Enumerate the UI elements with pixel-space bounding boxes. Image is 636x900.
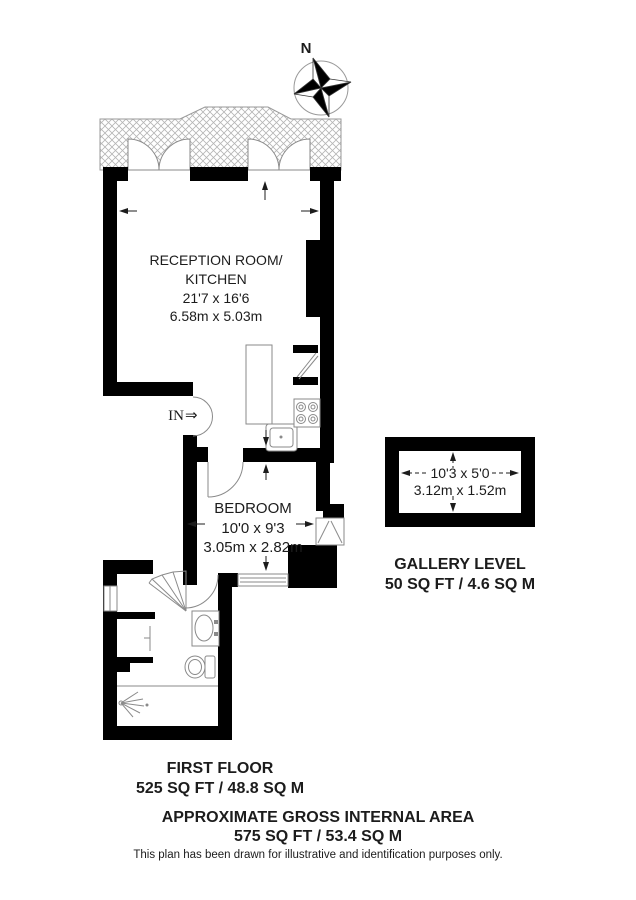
winder-stairs [149,571,186,611]
gross-internal-area-title: APPROXIMATE GROSS INTERNAL AREA [162,809,475,826]
room-labels: RECEPTION ROOM/ KITCHEN 21'7 x 16'6 6.58… [149,252,302,556]
kitchen-cupboard-door-icon [297,353,318,379]
disclaimer-text: This plan has been drawn for illustrativ… [133,849,502,861]
bedroom-dims-ft: 10'0 x 9'3 [221,520,284,537]
compass-north-label: N [301,40,312,57]
terrace-hatch-area [100,107,341,170]
gallery-level-box: 10'3 x 5'0 3.12m x 1.52m [385,437,535,527]
sink-icon [266,424,297,451]
gallery-dims-m: 3.12m x 1.52m [414,482,507,498]
entrance-arrow-icon: ⇒ [185,408,198,424]
bedroom-window-icon [238,574,288,586]
basin-icon [192,611,219,646]
reception-label-line2: KITCHEN [185,271,246,287]
toilet-icon [185,656,215,678]
bedroom-door-swing-icon [208,462,243,497]
reception-dims-ft: 21'7 x 16'6 [183,290,250,306]
compass-icon: N [294,40,351,117]
bedroom-dims-m: 3.05m x 2.82m [203,539,302,556]
gallery-dims-ft: 10'3 x 5'0 [430,465,489,481]
floorplan-sheet: 10'3 x 5'0 3.12m x 1.52m N RECEPTION ROO… [0,0,636,900]
chimney-breast [306,240,334,317]
first-floor-title: FIRST FLOOR [167,760,274,777]
casement-window-icon [144,626,150,651]
gallery-level-area: 50 SQ FT / 4.6 SQ M [385,576,535,593]
floorplan-drawing: 10'3 x 5'0 3.12m x 1.52m N RECEPTION ROO… [0,0,636,900]
shower-icon [119,692,149,717]
gross-internal-area-value: 575 SQ FT / 53.4 SQ M [234,828,402,845]
first-floor-area: 525 SQ FT / 48.8 SQ M [136,780,304,797]
kitchen-counter [246,345,272,424]
bathroom-fixtures [104,586,219,717]
entrance-in-label: IN [168,408,184,424]
kitchen-fixtures [246,345,320,451]
gallery-level-title: GALLERY LEVEL [394,556,526,573]
reception-dims-m: 6.58m x 5.03m [170,308,263,324]
west-window-icon [104,586,117,611]
hob-icon [294,399,320,427]
reception-label-line1: RECEPTION ROOM/ [149,252,282,268]
wardrobe-icon [316,518,344,545]
bedroom-label: BEDROOM [214,500,292,517]
titles: GALLERY LEVEL 50 SQ FT / 4.6 SQ M FIRST … [133,556,535,861]
